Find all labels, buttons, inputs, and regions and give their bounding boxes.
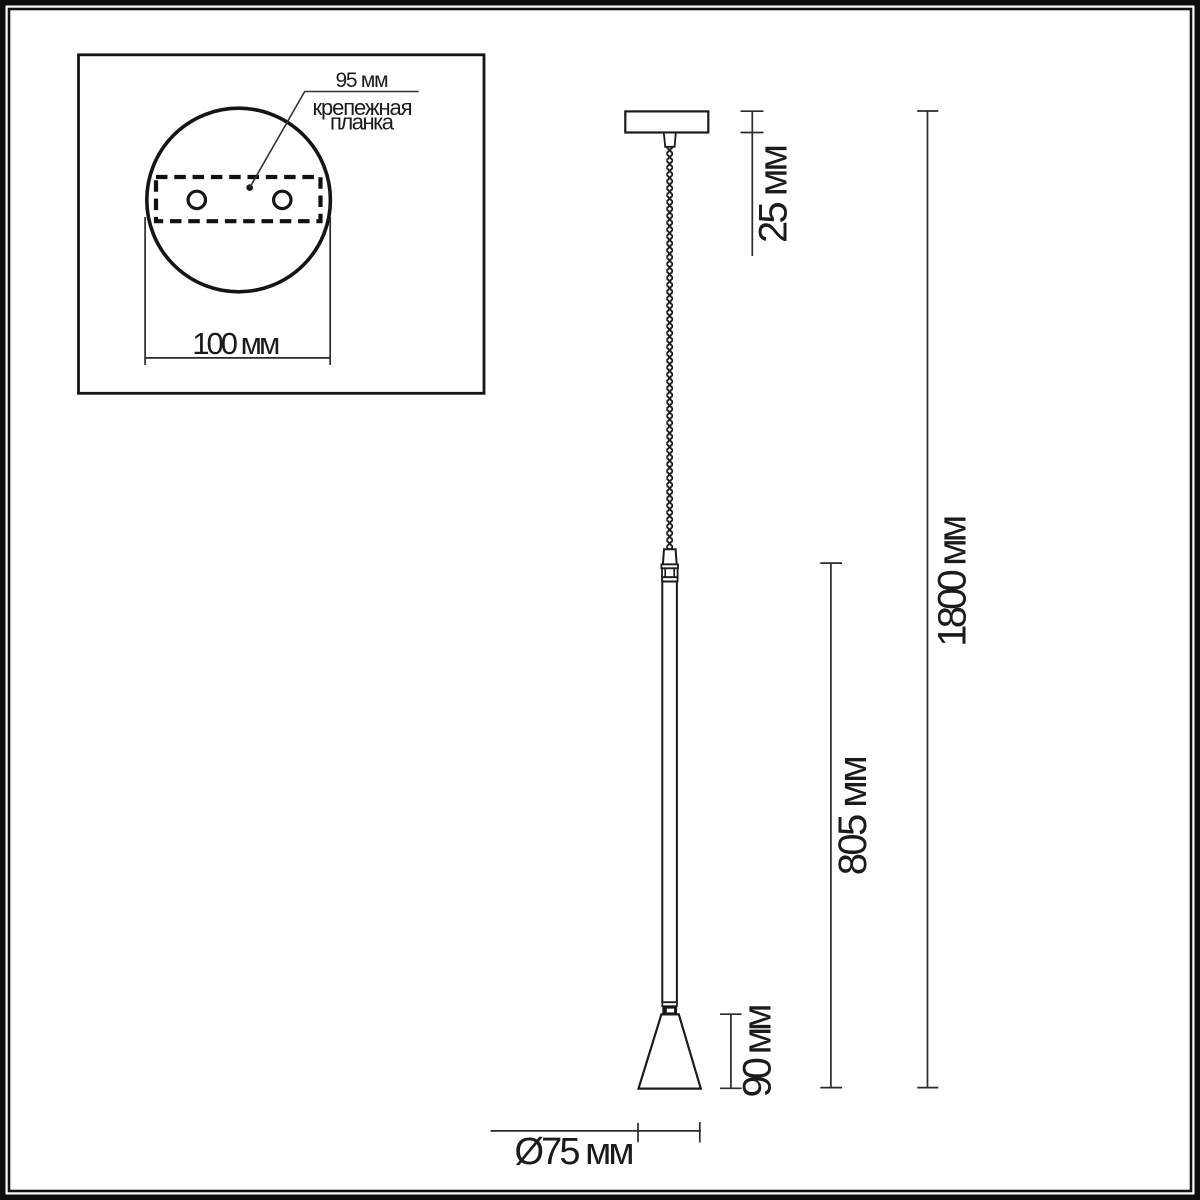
svg-text:планка: планка	[330, 110, 395, 135]
svg-text:90 мм: 90 мм	[736, 1004, 780, 1098]
svg-text:Ø75 мм: Ø75 мм	[515, 1131, 635, 1173]
svg-text:1800 мм: 1800 мм	[931, 515, 975, 647]
svg-text:25 мм: 25 мм	[752, 144, 796, 243]
svg-text:95 мм: 95 мм	[336, 69, 389, 92]
svg-text:805 мм: 805 мм	[831, 755, 875, 875]
svg-text:100 мм: 100 мм	[192, 326, 280, 361]
